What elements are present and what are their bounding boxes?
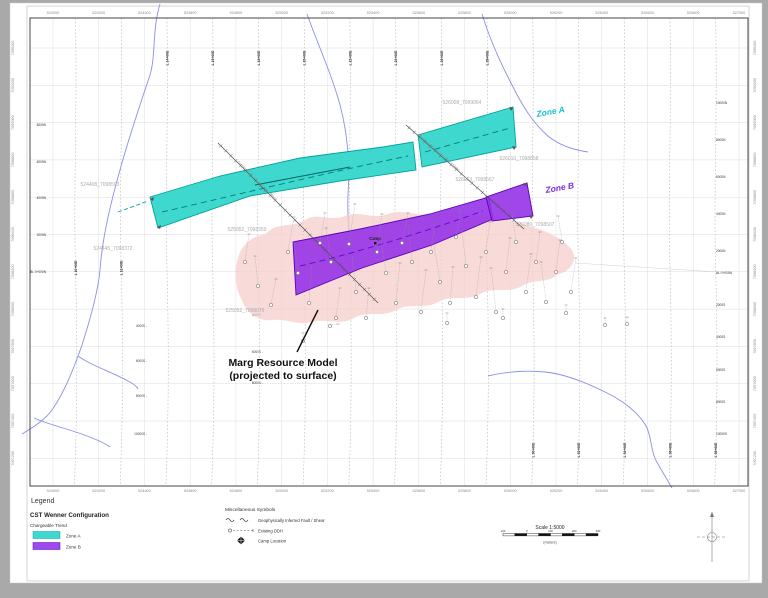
ddh-collar-icon (504, 270, 507, 273)
survey-line-label: L 36+00E (668, 442, 672, 457)
ddh-collar-icon (603, 323, 606, 326)
station-label-right: BL 0+000N (716, 271, 733, 275)
scale-segments (503, 534, 598, 536)
easting-label-top: 524200 (92, 11, 105, 15)
scale-tick-number: 100 (501, 529, 506, 533)
northing-label-left: 7099200 (11, 78, 15, 93)
ddh-collar-icon (328, 324, 331, 327)
coordinate-id-label: 526010_7098858 (500, 156, 539, 162)
ddh-collar-icon (554, 270, 557, 273)
ddh-collar-icon (438, 280, 441, 283)
station-label-mid: 10000S - (134, 432, 147, 436)
scale-segment (551, 534, 563, 536)
easting-label-bottom: 524600 (184, 489, 197, 493)
scale-segment (539, 534, 551, 536)
survey-line-label: L 28+00E (486, 50, 490, 65)
station-label-left: 4000N (37, 196, 47, 200)
station-label-left: 6000N (37, 160, 47, 164)
ddh-collar-icon (334, 316, 337, 319)
easting-label-bottom: 526600 (641, 489, 654, 493)
easting-label-top: 524600 (184, 11, 197, 15)
scale-tick-number: 100 (548, 529, 553, 533)
station-label-right: 2000S (716, 303, 725, 307)
northing-label-left: 7097800 (11, 339, 15, 354)
survey-line-label: L 26+00E (440, 50, 444, 65)
easting-label-bottom: 527000 (733, 489, 746, 493)
easting-label-top: 526400 (595, 11, 608, 15)
station-label-right: 10000S (716, 432, 727, 436)
survey-line-label: L 30+00E (531, 442, 535, 457)
ddh-collar-icon (501, 316, 504, 319)
northing-label-right: 7099000 (753, 115, 757, 130)
northing-label-right: 7098400 (753, 227, 757, 242)
northing-label-right: 7099200 (753, 78, 757, 93)
coordinate-id-label: 524408_7098593 (81, 182, 120, 188)
survey-line-label: L 34+00E (623, 442, 627, 457)
easting-label-bottom: 526400 (595, 489, 608, 493)
easting-label-top: 525800 (458, 11, 471, 15)
station-label-mid: 8000S - (136, 394, 147, 398)
easting-label-top: 526200 (550, 11, 563, 15)
station-label-right: 4000N (716, 212, 726, 216)
annotation-line-1: Marg Resource Model (228, 357, 337, 369)
legend-zone-a-swatch (33, 532, 60, 539)
ddh-collar-icon (569, 290, 572, 293)
easting-label-top: 526600 (641, 11, 654, 15)
northing-label-left: 7098200 (11, 264, 15, 279)
legend-zone-b-label: Zone B (66, 545, 81, 550)
easting-label-bottom: 525000 (275, 489, 288, 493)
scale-units: (meters) (543, 541, 556, 545)
northing-label-left: 7097200 (11, 451, 15, 466)
station-label-right: 6000N (716, 175, 726, 179)
ddh-collar-icon (286, 250, 289, 253)
coordinate-id-label: 526008_7099064 (443, 100, 482, 106)
station-label-left: BL 0+000N (30, 270, 47, 274)
survey-line-label: L 22+00E (348, 50, 352, 65)
survey-line-label: L 20+00E (303, 50, 307, 65)
easting-label-top: 525600 (413, 11, 426, 15)
ddh-collar-icon (394, 301, 397, 304)
legend-misc-title: Miscellaneous Symbols (225, 507, 276, 513)
ddh-collar-icon (364, 316, 367, 319)
ddh-collar-icon (410, 260, 413, 263)
northing-label-left: 7099400 (11, 41, 15, 56)
northing-label-right: 7098600 (753, 190, 757, 205)
ddh-collar-icon (474, 295, 477, 298)
ddh-collar-icon (400, 241, 403, 244)
northing-label-right: 7099400 (753, 41, 757, 56)
ddh-collar-icon (329, 260, 332, 263)
easting-label-top: 526000 (504, 11, 517, 15)
legend-chargeable-trend: Chargeable Trend (30, 523, 67, 528)
survey-line-label: L 18+00E (257, 50, 261, 65)
station-label-left: 8000N (37, 123, 47, 127)
ddh-collar-icon (534, 260, 537, 263)
ddh-collar-icon (347, 242, 350, 245)
ddh-collar-icon (524, 290, 527, 293)
station-label-right: 4000S (716, 335, 725, 339)
survey-line-label: L 32+00E (577, 442, 581, 457)
easting-label-top: 524800 (230, 11, 243, 15)
northing-label-left: 7099000 (11, 115, 15, 130)
ddh-collar-icon (296, 271, 299, 274)
station-label-right: 8000S (716, 400, 725, 404)
scale-tick-number: 300 (596, 529, 601, 533)
station-label-left: 2000N (37, 233, 47, 237)
scale-segment (586, 534, 598, 536)
annotation-line-2: (projected to surface) (229, 370, 336, 382)
northing-label-right: 7097200 (753, 451, 757, 466)
easting-label-bottom: 525200 (321, 489, 334, 493)
easting-label-top: 525400 (367, 11, 380, 15)
easting-label-bottom: 525600 (413, 489, 426, 493)
station-label-mid: 6000S - (252, 350, 263, 354)
easting-label-bottom: 525800 (458, 489, 471, 493)
ddh-collar-icon (448, 301, 451, 304)
camp-dot (374, 242, 376, 244)
ddh-collar-icon (429, 250, 432, 253)
station-label-right: 6000S (716, 368, 725, 372)
station-label-right: 10000N (716, 101, 728, 105)
survey-line-label: L 16+00E (211, 50, 215, 65)
legend-zone-a-label: Zone A (66, 534, 81, 539)
legend-ddh-label: Existing DDH (258, 529, 283, 534)
easting-label-bottom: 524400 (138, 489, 151, 493)
ddh-collar-icon (307, 301, 310, 304)
easting-label-bottom: 524800 (230, 489, 243, 493)
easting-label-top: 525000 (275, 11, 288, 15)
ddh-collar-icon (243, 260, 246, 263)
scale-segment (574, 534, 586, 536)
easting-label-top: 527000 (733, 11, 746, 15)
survey-line-label: L 10+00E (74, 260, 78, 275)
station-label-right: 2000N (716, 249, 726, 253)
coordinate-id-label: 525052_7098359 (228, 227, 267, 233)
station-label-mid: 6000S - (136, 359, 147, 363)
easting-label-bottom: 525400 (367, 489, 380, 493)
scale-segment (503, 534, 515, 536)
coordinate-id-label: 525052_7098075 (226, 308, 265, 314)
ddh-collar-icon (419, 310, 422, 313)
coordinate-id-label: 524445_7098372 (94, 246, 133, 252)
map-sheet-page: 5240005240005242005242005244005244005246… (0, 0, 768, 598)
survey-line-label: L 24+00E (394, 50, 398, 65)
northing-label-right: 7098000 (753, 302, 757, 317)
northing-label-left: 7098400 (11, 227, 15, 242)
ddh-collar-icon (269, 303, 272, 306)
scale-segment (515, 534, 527, 536)
ddh-collar-icon (484, 250, 487, 253)
ddh-collar-icon (564, 311, 567, 314)
easting-label-top: 525200 (321, 11, 334, 15)
ddh-collar-icon (384, 271, 387, 274)
easting-label-top: 524000 (47, 11, 60, 15)
ddh-collar-icon (514, 240, 517, 243)
ddh-collar-icon (464, 264, 467, 267)
legend-camp-label: Camp Location (258, 539, 287, 544)
northing-label-left: 7098000 (11, 302, 15, 317)
legend-fault-label: Geophysically Inferred Fault / Shear (258, 518, 325, 523)
survey-line-label: L 14+00E (165, 50, 169, 65)
easting-label-bottom: 526000 (504, 489, 517, 493)
coordinate-id-label: 526063_7098667 (456, 177, 495, 183)
easting-label-bottom: 524000 (47, 489, 60, 493)
survey-line-label: L 12+00E (120, 260, 124, 275)
ddh-collar-icon (354, 290, 357, 293)
easting-label-top: 526800 (687, 11, 700, 15)
northing-label-right: 7097800 (753, 339, 757, 354)
northing-label-right: 7098200 (753, 264, 757, 279)
easting-label-bottom: 526800 (687, 489, 700, 493)
legend-section-cst: CST Wenner Configuration (30, 512, 109, 519)
station-label-right: 8000N (716, 138, 726, 142)
scale-segment (527, 534, 539, 536)
coordinate-id-label: 526080_7098507 (516, 222, 555, 228)
northing-label-left: 7097400 (11, 414, 15, 429)
ddh-collar-icon (454, 235, 457, 238)
camp-label: Camp (369, 236, 381, 241)
scale-segment (562, 534, 574, 536)
ddh-collar-icon (494, 310, 497, 313)
ddh-collar-icon (256, 284, 259, 287)
ddh-collar-icon (318, 241, 321, 244)
ddh-collar-icon (445, 321, 448, 324)
easting-label-top: 524400 (138, 11, 151, 15)
ddh-collar-icon (560, 240, 563, 243)
easting-label-bottom: 526200 (550, 489, 563, 493)
ddh-collar-icon (625, 322, 628, 325)
scale-tick-number: 200 (572, 529, 577, 533)
ddh-collar-icon (375, 250, 378, 253)
northing-label-left: 7097600 (11, 376, 15, 391)
station-label-mid: 4000S - (136, 324, 147, 328)
legend-title: Legend (31, 498, 54, 505)
northing-label-right: 7097400 (753, 414, 757, 429)
northing-label-left: 7098800 (11, 153, 15, 168)
easting-label-bottom: 524200 (92, 489, 105, 493)
legend-zone-b-swatch (33, 543, 60, 550)
survey-line-label: L 38+00E (714, 442, 718, 457)
northing-label-right: 7098800 (753, 153, 757, 168)
northing-label-right: 7097600 (753, 376, 757, 391)
geological-map-canvas: 5240005240005242005242005244005244005246… (0, 0, 768, 598)
northing-label-left: 7098600 (11, 190, 15, 205)
ddh-collar-icon (544, 300, 547, 303)
